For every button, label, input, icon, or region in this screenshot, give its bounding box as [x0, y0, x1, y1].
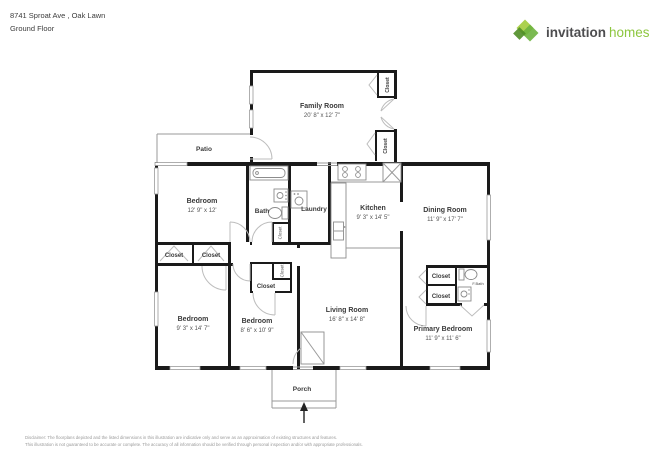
- full-bath-label: F.Bath: [472, 281, 483, 286]
- closet-label-fr-bottom: Closet: [383, 138, 389, 154]
- kitchen-label: Kitchen: [360, 205, 386, 212]
- disclaimer: Disclaimer: The floorplans depicted and …: [25, 435, 363, 447]
- closet-label-fr-top: Closet: [385, 77, 391, 93]
- floorplan-page: 8741 Sproat Ave , Oak Lawn Ground Floor …: [0, 0, 650, 460]
- dining-room-dims: 11' 9" x 17' 7": [427, 217, 463, 223]
- floorplan-canvas: 8741 Sproat Ave , Oak Lawn Ground Floor …: [0, 0, 650, 460]
- family-room-dims: 20' 8" x 12' 7": [304, 113, 340, 119]
- fireplace: [301, 332, 324, 364]
- refrigerator: [383, 163, 401, 182]
- header: 8741 Sproat Ave , Oak Lawn Ground Floor: [10, 11, 105, 33]
- brand-word-2: homes: [609, 25, 650, 40]
- closet-label-bath: Closet: [278, 226, 283, 240]
- bath-sink: [274, 189, 288, 202]
- closet-label-f: Closet: [432, 294, 450, 300]
- bedroom2-label: Bedroom: [178, 316, 209, 323]
- address-text: 8741 Sproat Ave , Oak Lawn: [10, 11, 105, 20]
- closet-label-d: Closet: [280, 264, 285, 278]
- brand-logo: invitation homes: [513, 20, 650, 42]
- bedroom1-label: Bedroom: [187, 198, 218, 205]
- closet-label-e: Closet: [432, 274, 450, 280]
- living-room-label: Living Room: [326, 307, 368, 314]
- porch-label: Porch: [293, 386, 311, 393]
- bedroom3-label: Bedroom: [242, 318, 273, 325]
- entry-arrow-icon: [300, 402, 308, 423]
- closet-label-a: Closet: [165, 253, 183, 259]
- disclaimer-line-2: This illustration is not guaranteed to b…: [25, 442, 363, 447]
- brand-word-1: invitation: [546, 25, 606, 40]
- laundry-label: Laundry: [301, 206, 327, 213]
- bedroom2-dims: 9' 3" x 14' 7": [177, 326, 210, 332]
- primary-bedroom-label: Primary Bedroom: [414, 326, 473, 333]
- dining-room-label: Dining Room: [423, 207, 467, 214]
- living-room-dims: 16' 8" x 14' 8": [329, 317, 365, 323]
- family-room-label: Family Room: [300, 103, 344, 110]
- stove: [338, 164, 366, 180]
- disclaimer-line-1: Disclaimer: The floorplans depicted and …: [25, 435, 337, 440]
- bedroom1-dims: 12' 9" x 12': [187, 208, 216, 214]
- bedroom3-dims: 8' 6" x 10' 9": [241, 328, 274, 334]
- closet-label-c: Closet: [257, 284, 275, 290]
- bath-label: Bath: [255, 208, 269, 215]
- primary-sink: [458, 287, 471, 301]
- bathtub: [250, 166, 288, 180]
- toilet: [269, 207, 289, 219]
- primary-toilet: [459, 269, 477, 280]
- kitchen-dims: 9' 3" x 14' 5": [357, 215, 390, 221]
- primary-bedroom-dims: 11' 9" x 11' 6": [425, 336, 460, 342]
- patio-label: Patio: [196, 146, 212, 153]
- closet-label-b: Closet: [202, 253, 220, 259]
- floor-label: Ground Floor: [10, 24, 55, 33]
- invitation-homes-icon: [513, 20, 538, 42]
